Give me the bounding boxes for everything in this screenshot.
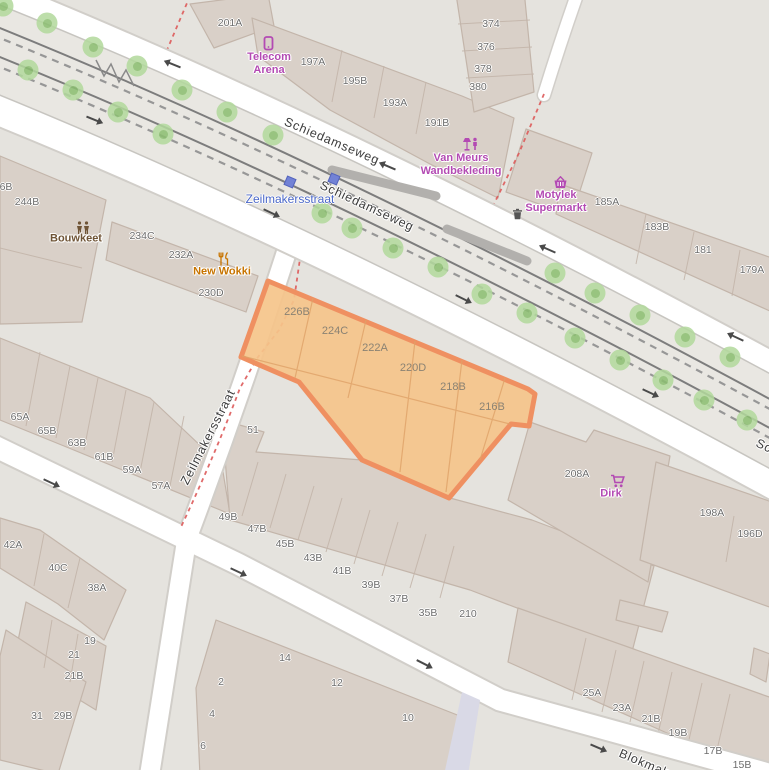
map-base	[0, 0, 769, 770]
map-canvas[interactable]: 201A374376378380197A195B193A191B185A183B…	[0, 0, 769, 770]
